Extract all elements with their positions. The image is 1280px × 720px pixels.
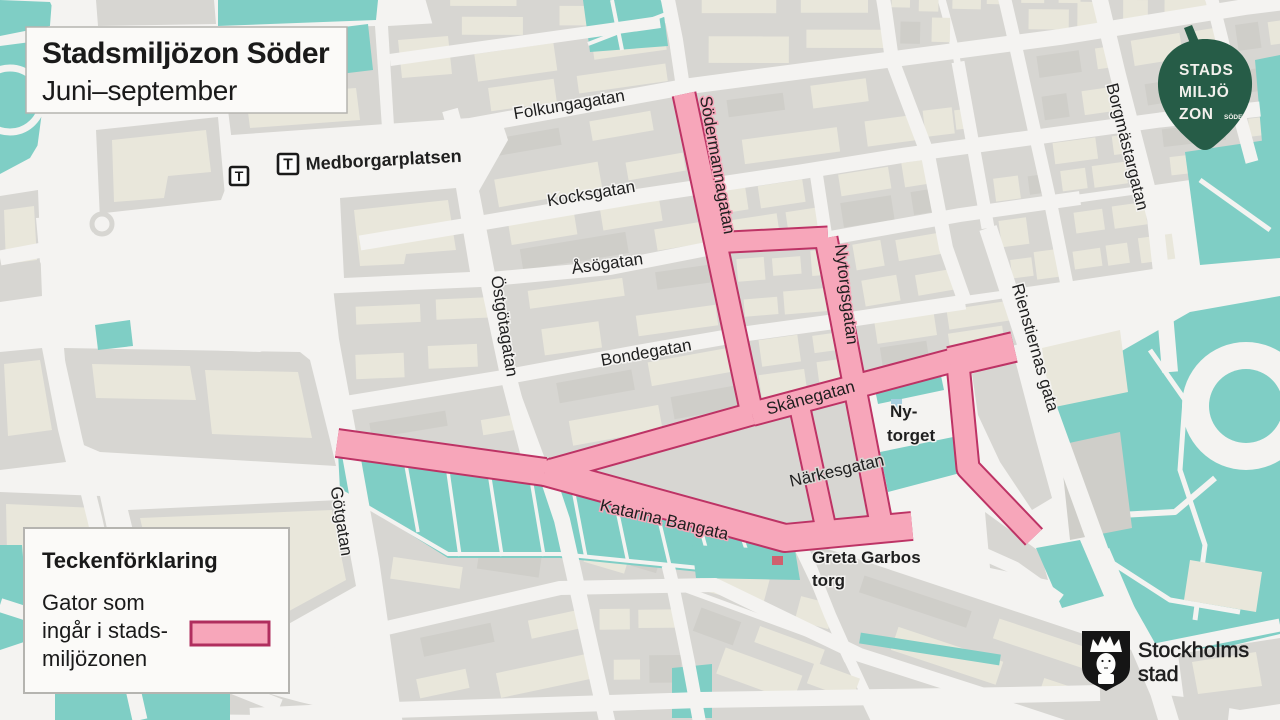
svg-text:SÖDER: SÖDER [1224, 112, 1247, 121]
svg-text:stad: stad [1138, 662, 1179, 686]
svg-text:MILJÖ: MILJÖ [1179, 84, 1229, 101]
svg-text:Juni–september: Juni–september [42, 75, 237, 106]
svg-text:T: T [235, 168, 244, 184]
svg-text:torget: torget [887, 426, 936, 445]
svg-text:torg: torg [812, 571, 845, 590]
svg-text:miljözonen: miljözonen [42, 646, 147, 671]
svg-text:ZON: ZON [1179, 106, 1214, 123]
svg-text:Teckenförklaring: Teckenförklaring [42, 548, 218, 573]
svg-text:T: T [283, 157, 293, 174]
svg-text:Gator som: Gator som [42, 590, 145, 615]
svg-text:Ny-: Ny- [890, 402, 917, 421]
svg-text:Stadsmiljözon Söder: Stadsmiljözon Söder [42, 37, 330, 70]
svg-text:STADS: STADS [1179, 62, 1233, 79]
svg-text:ingår i stads-: ingår i stads- [42, 618, 168, 643]
svg-text:Greta Garbos: Greta Garbos [812, 548, 921, 567]
svg-text:Stockholms: Stockholms [1138, 638, 1249, 662]
